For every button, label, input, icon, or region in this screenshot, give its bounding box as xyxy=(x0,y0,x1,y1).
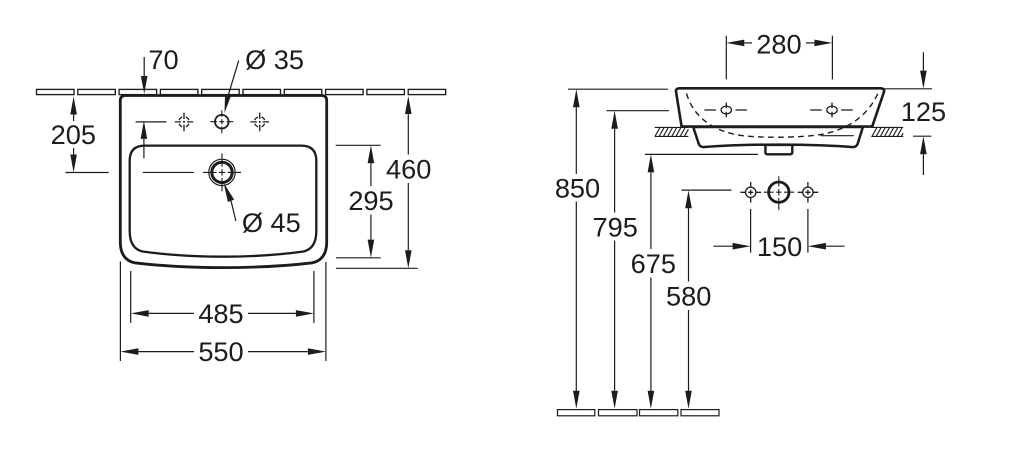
svg-text:150: 150 xyxy=(757,231,802,262)
svg-text:795: 795 xyxy=(593,211,638,242)
svg-text:Ø 35: Ø 35 xyxy=(245,44,304,75)
svg-text:485: 485 xyxy=(198,298,243,329)
svg-text:125: 125 xyxy=(901,96,946,127)
svg-text:850: 850 xyxy=(555,173,600,204)
svg-text:70: 70 xyxy=(148,44,178,75)
svg-text:295: 295 xyxy=(348,185,393,216)
svg-text:580: 580 xyxy=(666,280,711,311)
svg-text:675: 675 xyxy=(631,248,676,279)
svg-text:280: 280 xyxy=(756,29,801,60)
svg-text:460: 460 xyxy=(386,153,431,184)
svg-text:205: 205 xyxy=(51,119,96,150)
svg-text:550: 550 xyxy=(198,336,243,367)
svg-text:Ø 45: Ø 45 xyxy=(242,207,301,238)
